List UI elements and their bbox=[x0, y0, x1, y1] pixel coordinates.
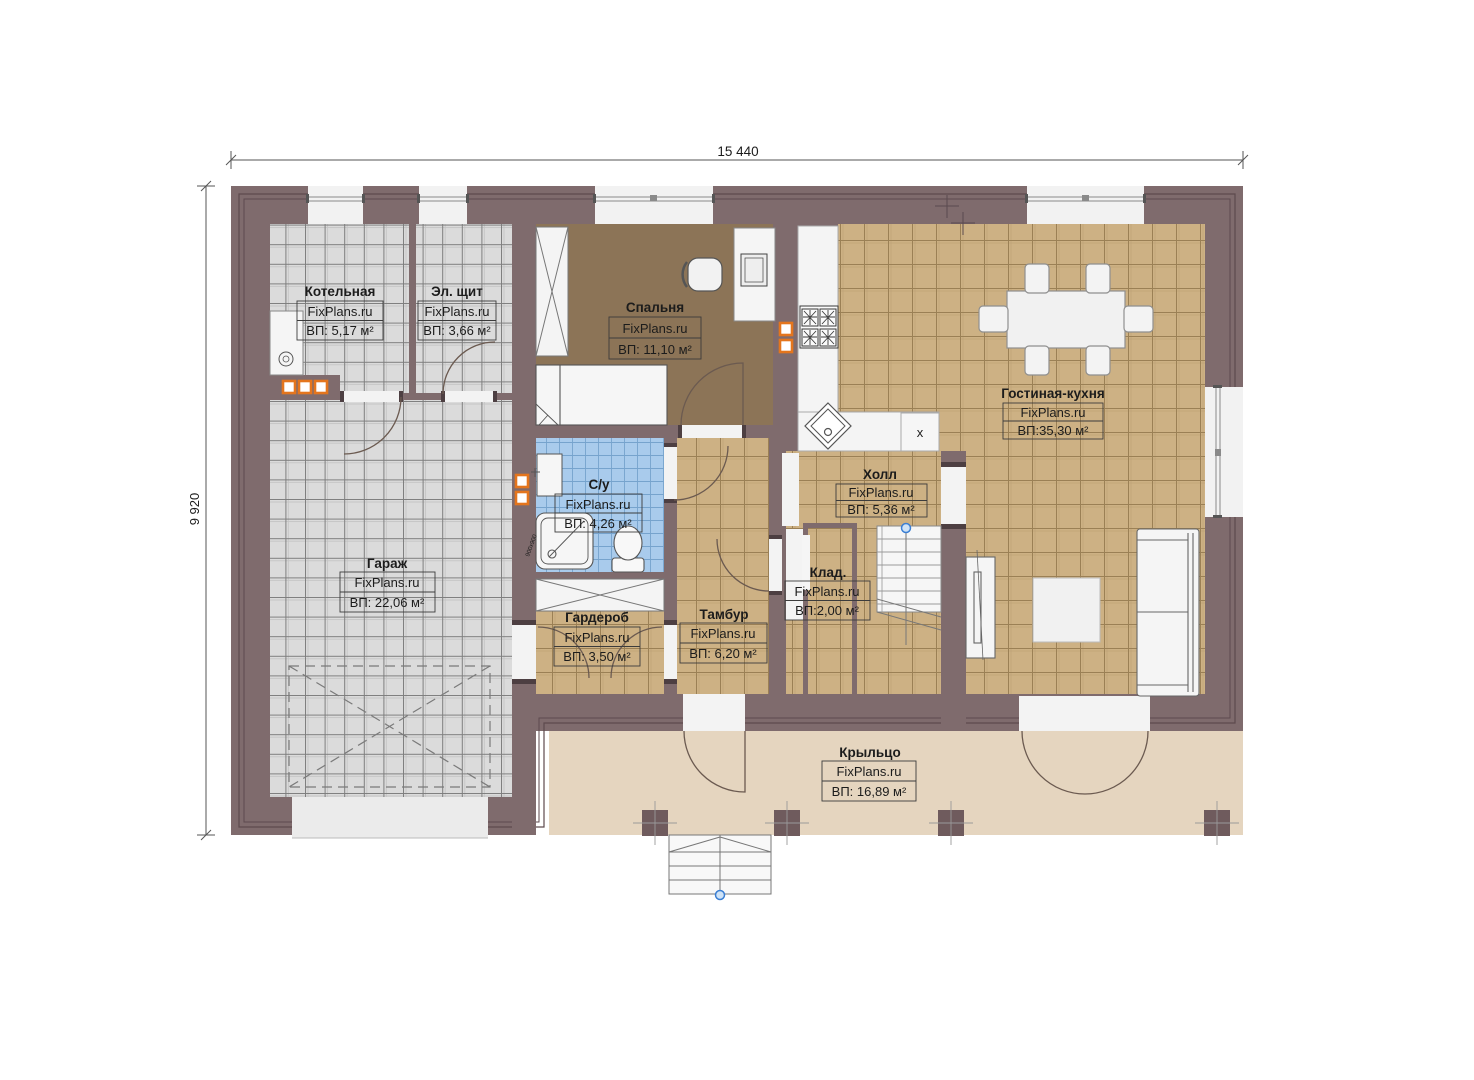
svg-text:ВП: 5,36 м²: ВП: 5,36 м² bbox=[847, 502, 915, 517]
svg-text:ВП: 11,10 м²: ВП: 11,10 м² bbox=[618, 342, 692, 357]
svg-text:ВП: 6,20 м²: ВП: 6,20 м² bbox=[689, 646, 757, 661]
svg-text:Спальня: Спальня bbox=[626, 300, 684, 315]
svg-text:FixPlans.ru: FixPlans.ru bbox=[1020, 405, 1085, 420]
svg-text:9 920: 9 920 bbox=[187, 493, 202, 526]
svg-text:ВП: 5,17 м²: ВП: 5,17 м² bbox=[306, 323, 374, 338]
svg-text:ВП: 3,50 м²: ВП: 3,50 м² bbox=[563, 649, 631, 664]
svg-text:Тамбур: Тамбур bbox=[700, 607, 749, 622]
svg-text:ВП: 22,06 м²: ВП: 22,06 м² bbox=[350, 595, 425, 610]
svg-text:Гостиная-кухня: Гостиная-кухня bbox=[1001, 386, 1104, 401]
svg-text:ВП:2,00 м²: ВП:2,00 м² bbox=[795, 603, 859, 618]
svg-text:FixPlans.ru: FixPlans.ru bbox=[424, 304, 489, 319]
svg-text:ВП: 3,66 м²: ВП: 3,66 м² bbox=[423, 323, 491, 338]
svg-text:Клад.: Клад. bbox=[810, 565, 847, 580]
svg-text:15 440: 15 440 bbox=[717, 144, 758, 159]
svg-text:Эл. щит: Эл. щит bbox=[431, 284, 483, 299]
svg-text:ВП: 4,26 м²: ВП: 4,26 м² bbox=[564, 516, 632, 531]
svg-text:FixPlans.ru: FixPlans.ru bbox=[690, 626, 755, 641]
svg-text:Котельная: Котельная bbox=[305, 284, 376, 299]
svg-text:Гардероб: Гардероб bbox=[565, 610, 629, 625]
svg-text:Холл: Холл bbox=[863, 467, 897, 482]
svg-text:FixPlans.ru: FixPlans.ru bbox=[307, 304, 372, 319]
svg-text:ВП: 16,89 м²: ВП: 16,89 м² bbox=[832, 784, 907, 799]
svg-text:FixPlans.ru: FixPlans.ru bbox=[848, 485, 913, 500]
svg-text:FixPlans.ru: FixPlans.ru bbox=[622, 321, 687, 336]
svg-text:FixPlans.ru: FixPlans.ru bbox=[565, 497, 630, 512]
svg-text:FixPlans.ru: FixPlans.ru bbox=[354, 575, 419, 590]
svg-text:FixPlans.ru: FixPlans.ru bbox=[836, 764, 901, 779]
svg-text:FixPlans.ru: FixPlans.ru bbox=[564, 630, 629, 645]
svg-text:С/у: С/у bbox=[588, 477, 610, 492]
svg-text:ВП:35,30 м²: ВП:35,30 м² bbox=[1017, 423, 1089, 438]
svg-text:Крыльцо: Крыльцо bbox=[839, 745, 900, 760]
svg-text:FixPlans.ru: FixPlans.ru bbox=[794, 584, 859, 599]
svg-text:x: x bbox=[917, 425, 924, 440]
svg-text:Гараж: Гараж bbox=[367, 556, 408, 571]
